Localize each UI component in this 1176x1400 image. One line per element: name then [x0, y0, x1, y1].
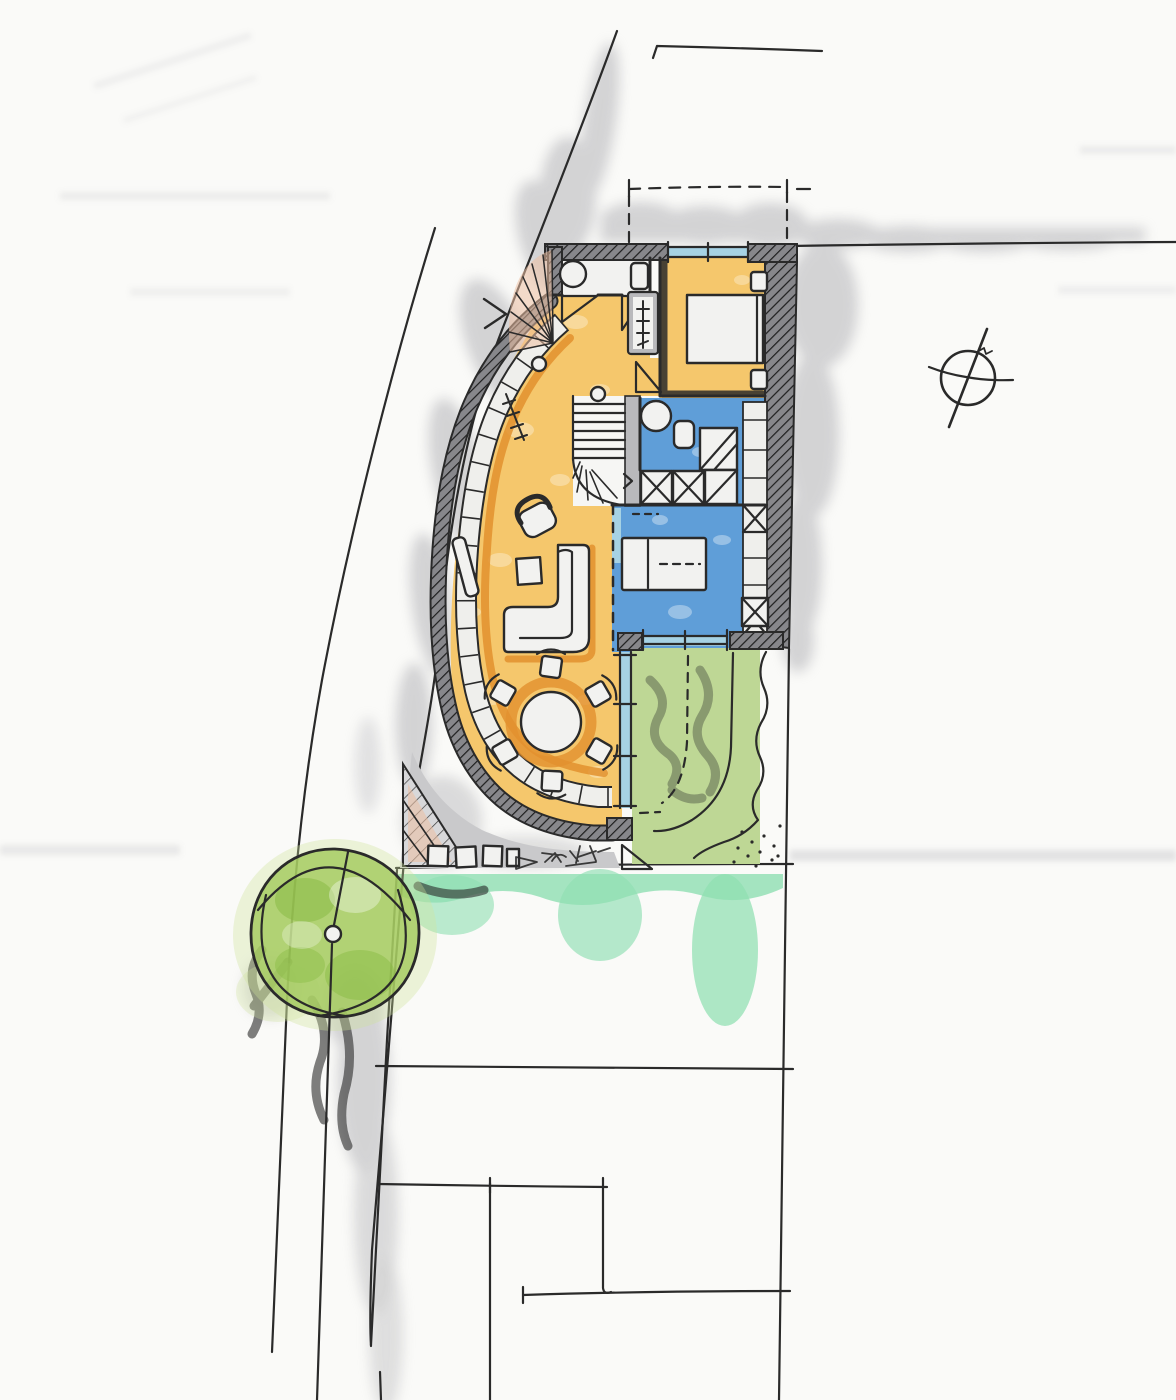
site-plan-canvas: [0, 0, 1176, 1400]
wc-icon: [631, 263, 648, 289]
window-strip: [612, 508, 621, 563]
basin-icon: [560, 261, 586, 287]
tree-trunk-circle: [325, 926, 341, 942]
dining-table: [521, 692, 581, 752]
site-plan-drawing: [0, 0, 1176, 1400]
shaft-x-box: [742, 598, 768, 626]
nightstand: [751, 272, 767, 291]
road-edge-east-stub: [380, 1372, 381, 1400]
side-table: [516, 557, 542, 585]
wardrobe-closet: [628, 292, 658, 354]
stairs: [573, 387, 640, 506]
shaft-x-box: [641, 471, 704, 504]
column-circle: [532, 357, 546, 371]
bed-double: [687, 295, 763, 363]
nightstand: [751, 370, 767, 389]
basin-icon: [641, 401, 671, 431]
newel-circle: [591, 387, 605, 401]
wc-icon: [674, 421, 694, 448]
